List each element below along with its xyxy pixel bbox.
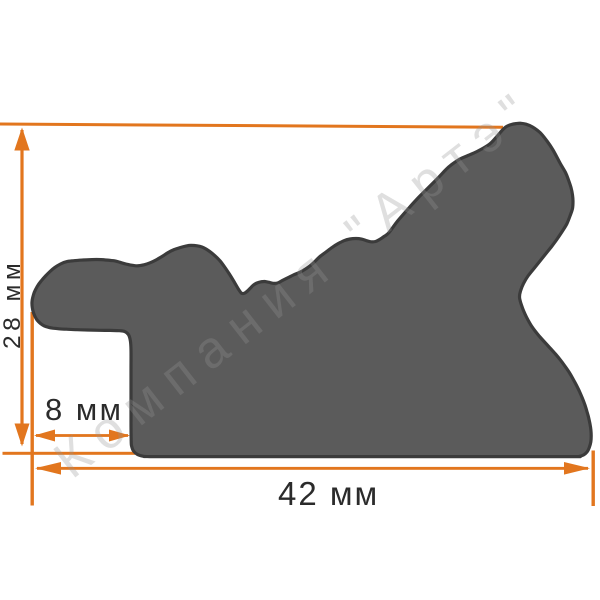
svg-text:8 мм: 8 мм (45, 392, 123, 427)
svg-text:28 мм: 28 мм (0, 259, 26, 349)
svg-text:42 мм: 42 мм (278, 475, 379, 512)
